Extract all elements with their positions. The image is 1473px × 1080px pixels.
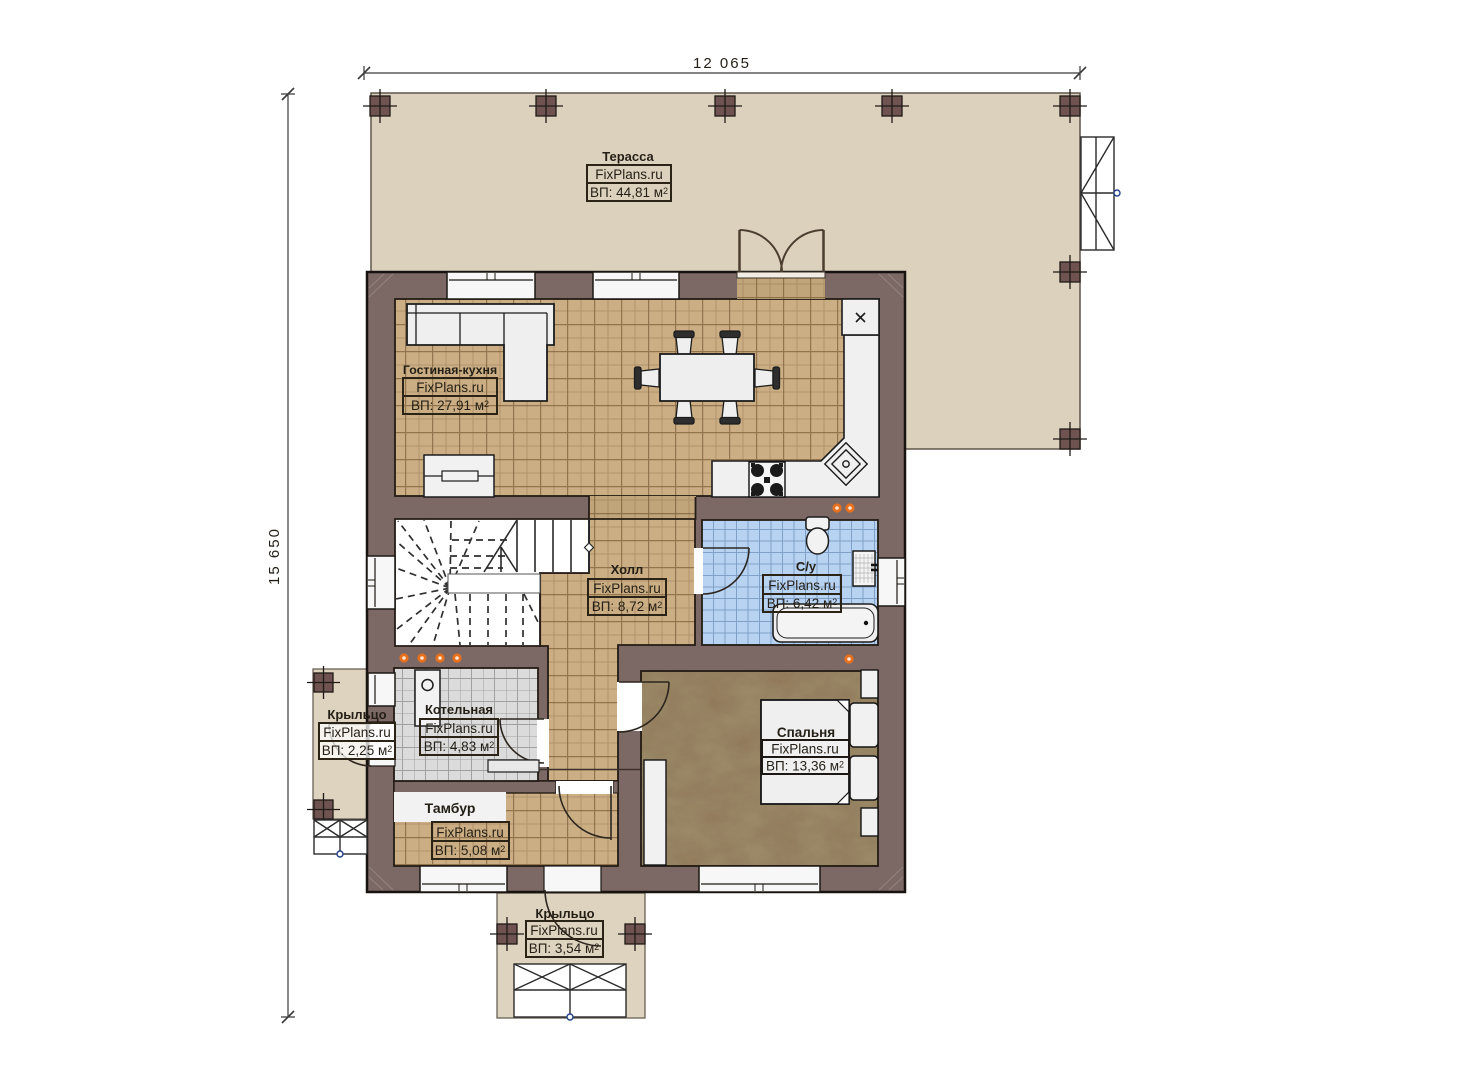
svg-text:FixPlans.ru: FixPlans.ru <box>768 578 836 593</box>
svg-text:FixPlans.ru: FixPlans.ru <box>323 725 391 740</box>
svg-text:FixPlans.ru: FixPlans.ru <box>771 742 839 757</box>
svg-text:ВП: 6,42 м2: ВП: 6,42 м2 <box>767 596 838 611</box>
svg-text:С/у: С/у <box>796 559 817 574</box>
svg-text:FixPlans.ru: FixPlans.ru <box>425 721 493 736</box>
svg-text:ВП: 8,72 м2: ВП: 8,72 м2 <box>592 599 663 614</box>
svg-text:Гостиная-кухня: Гостиная-кухня <box>403 363 497 377</box>
svg-text:ВП: 3,54 м2: ВП: 3,54 м2 <box>529 941 600 956</box>
svg-text:FixPlans.ru: FixPlans.ru <box>530 923 598 938</box>
svg-text:ВП: 13,36 м2: ВП: 13,36 м2 <box>766 759 844 774</box>
svg-text:Котельная: Котельная <box>425 702 493 717</box>
svg-text:Холл: Холл <box>611 562 644 577</box>
svg-text:FixPlans.ru: FixPlans.ru <box>593 581 661 596</box>
svg-text:ВП: 2,25 м2: ВП: 2,25 м2 <box>322 743 393 758</box>
svg-text:Терасса: Терасса <box>602 149 654 164</box>
svg-text:12 065: 12 065 <box>693 55 751 72</box>
svg-text:15 650: 15 650 <box>266 527 283 585</box>
svg-text:FixPlans.ru: FixPlans.ru <box>416 380 484 395</box>
svg-text:ВП: 27,91 м2: ВП: 27,91 м2 <box>411 398 489 413</box>
svg-text:ВП: 4,83 м2: ВП: 4,83 м2 <box>424 739 495 754</box>
svg-text:FixPlans.ru: FixPlans.ru <box>595 167 663 182</box>
svg-text:ВП: 5,08 м2: ВП: 5,08 м2 <box>435 843 506 858</box>
svg-text:Спальня: Спальня <box>777 725 835 740</box>
svg-text:Тамбур: Тамбур <box>425 800 476 816</box>
svg-text:ВП: 44,81 м2: ВП: 44,81 м2 <box>590 185 668 200</box>
svg-text:Крыльцо: Крыльцо <box>535 906 594 921</box>
svg-text:Крыльцо: Крыльцо <box>327 707 386 722</box>
svg-text:FixPlans.ru: FixPlans.ru <box>436 825 504 840</box>
